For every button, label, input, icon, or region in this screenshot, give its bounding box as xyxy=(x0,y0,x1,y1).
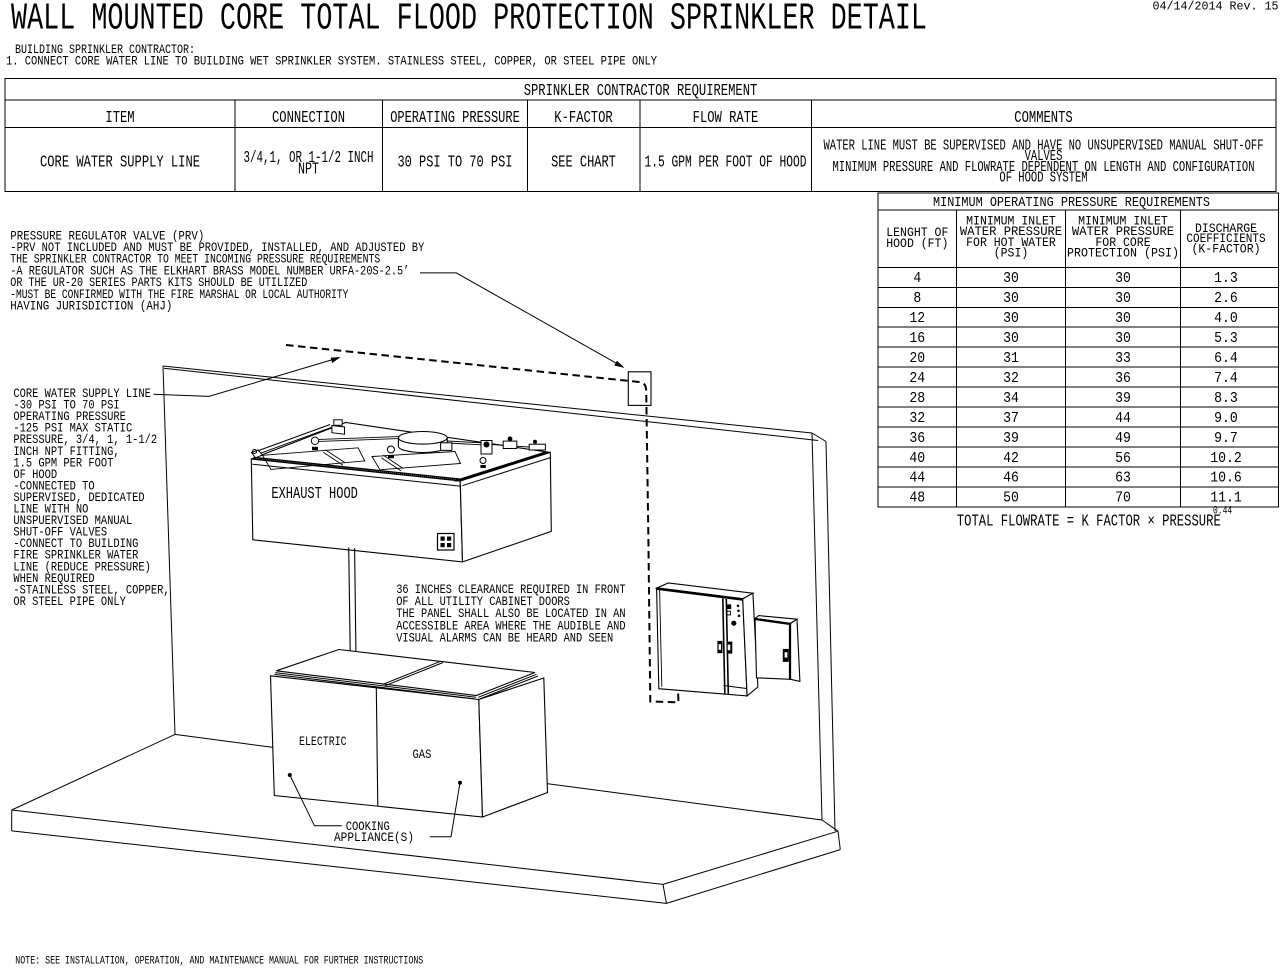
svg-text:0.44: 0.44 xyxy=(1213,506,1232,518)
svg-text:4.0: 4.0 xyxy=(1214,311,1238,327)
svg-text:36: 36 xyxy=(909,431,925,447)
svg-text:9.7: 9.7 xyxy=(1214,431,1238,447)
svg-text:6.4: 6.4 xyxy=(1214,351,1238,367)
svg-text:MINIMUM OPERATING PRESSURE REQ: MINIMUM OPERATING PRESSURE REQUIREMENTS xyxy=(933,196,1210,211)
svg-text:SPRINKLER CONTRACTOR REQUIREME: SPRINKLER CONTRACTOR REQUIREMENT xyxy=(524,82,758,101)
svg-text:8.3: 8.3 xyxy=(1214,391,1238,407)
svg-text:44: 44 xyxy=(1115,411,1131,427)
svg-text:8: 8 xyxy=(913,291,921,307)
svg-text:12: 12 xyxy=(909,311,925,327)
svg-text:ELECTRIC: ELECTRIC xyxy=(299,735,347,749)
svg-text:04/14/2014 Rev. 15: 04/14/2014 Rev. 15 xyxy=(1153,0,1279,14)
svg-text:HOOD (FT): HOOD (FT) xyxy=(886,236,948,251)
svg-text:OR STEEL PIPE ONLY: OR STEEL PIPE ONLY xyxy=(13,595,126,609)
svg-text:ITEM: ITEM xyxy=(105,109,134,128)
svg-text:2.6: 2.6 xyxy=(1214,291,1238,307)
svg-text:39: 39 xyxy=(1003,431,1019,447)
svg-text:33: 33 xyxy=(1115,351,1131,367)
svg-text:NPT: NPT xyxy=(298,161,319,180)
svg-text:SEE CHART: SEE CHART xyxy=(551,153,616,172)
svg-text:42: 42 xyxy=(1003,451,1019,467)
svg-text:CORE WATER SUPPLY LINE: CORE WATER SUPPLY LINE xyxy=(40,153,200,172)
svg-text:5.3: 5.3 xyxy=(1214,331,1238,347)
svg-text:30: 30 xyxy=(1003,311,1019,327)
svg-text:24: 24 xyxy=(909,371,925,387)
svg-text:31: 31 xyxy=(1003,351,1019,367)
svg-text:VISUAL ALARMS CAN BE HEARD AND: VISUAL ALARMS CAN BE HEARD AND SEEN xyxy=(396,632,613,646)
svg-text:28: 28 xyxy=(909,391,925,407)
svg-text:48: 48 xyxy=(909,491,925,507)
svg-text:GAS: GAS xyxy=(413,748,432,762)
svg-text:30: 30 xyxy=(1115,271,1131,287)
svg-text:30: 30 xyxy=(1003,271,1019,287)
svg-text:1.3: 1.3 xyxy=(1214,271,1238,287)
svg-text:30: 30 xyxy=(1003,331,1019,347)
svg-text:(K-FACTOR): (K-FACTOR) xyxy=(1192,242,1261,257)
svg-text:OF HOOD SYSTEM: OF HOOD SYSTEM xyxy=(999,171,1087,187)
svg-text:30: 30 xyxy=(1115,331,1131,347)
svg-text:44: 44 xyxy=(909,471,925,487)
svg-text:CONNECTION: CONNECTION xyxy=(272,109,345,128)
svg-text:HAVING JURISDICTION (AHJ): HAVING JURISDICTION (AHJ) xyxy=(10,300,172,314)
svg-text:39: 39 xyxy=(1115,391,1131,407)
svg-text:56: 56 xyxy=(1115,451,1131,467)
svg-text:FLOW RATE: FLOW RATE xyxy=(693,109,759,128)
svg-text:PROTECTION (PSI): PROTECTION (PSI) xyxy=(1067,246,1179,261)
svg-text:1. CONNECT CORE WATER LINE TO: 1. CONNECT CORE WATER LINE TO BUILDING W… xyxy=(6,55,657,69)
svg-text:7.4: 7.4 xyxy=(1214,371,1238,387)
svg-text:WALL MOUNTED CORE TOTAL FLOOD: WALL MOUNTED CORE TOTAL FLOOD PROTECTION… xyxy=(11,0,927,41)
svg-text:1.5 GPM PER FOOT OF HOOD: 1.5 GPM PER FOOT OF HOOD xyxy=(645,153,807,172)
svg-text:30 PSI TO 70 PSI: 30 PSI TO 70 PSI xyxy=(398,153,513,172)
svg-text:40: 40 xyxy=(909,451,925,467)
svg-text:34: 34 xyxy=(1003,391,1019,407)
svg-text:32: 32 xyxy=(1003,371,1019,387)
svg-text:(PSI): (PSI) xyxy=(994,246,1029,261)
svg-text:OPERATING PRESSURE: OPERATING PRESSURE xyxy=(390,109,520,128)
svg-text:32: 32 xyxy=(909,411,925,427)
svg-text:37: 37 xyxy=(1003,411,1019,427)
svg-text:49: 49 xyxy=(1115,431,1131,447)
svg-text:NOTE: SEE INSTALLATION, OPERA: NOTE: SEE INSTALLATION, OPERATION, AND M… xyxy=(15,955,423,967)
svg-text:63: 63 xyxy=(1115,471,1131,487)
svg-text:11.1: 11.1 xyxy=(1210,491,1242,507)
svg-text:APPLIANCE(S): APPLIANCE(S) xyxy=(334,831,414,845)
svg-text:30: 30 xyxy=(1115,311,1131,327)
svg-text:30: 30 xyxy=(1115,291,1131,307)
svg-text:COMMENTS: COMMENTS xyxy=(1014,109,1072,128)
svg-text:20: 20 xyxy=(909,351,925,367)
svg-text:4: 4 xyxy=(913,271,921,287)
svg-text:EXHAUST HOOD: EXHAUST HOOD xyxy=(271,485,358,504)
svg-text:K-FACTOR: K-FACTOR xyxy=(554,109,612,128)
svg-text:TOTAL FLOWRATE = K FACTOR × PR: TOTAL FLOWRATE = K FACTOR × PRESSURE xyxy=(957,512,1221,531)
svg-text:70: 70 xyxy=(1115,491,1131,507)
svg-text:9.0: 9.0 xyxy=(1214,411,1238,427)
svg-text:30: 30 xyxy=(1003,291,1019,307)
svg-text:50: 50 xyxy=(1003,491,1019,507)
svg-text:36: 36 xyxy=(1115,371,1131,387)
svg-text:10.6: 10.6 xyxy=(1210,471,1242,487)
svg-text:46: 46 xyxy=(1003,471,1019,487)
svg-text:16: 16 xyxy=(909,331,925,347)
svg-text:10.2: 10.2 xyxy=(1210,451,1242,467)
